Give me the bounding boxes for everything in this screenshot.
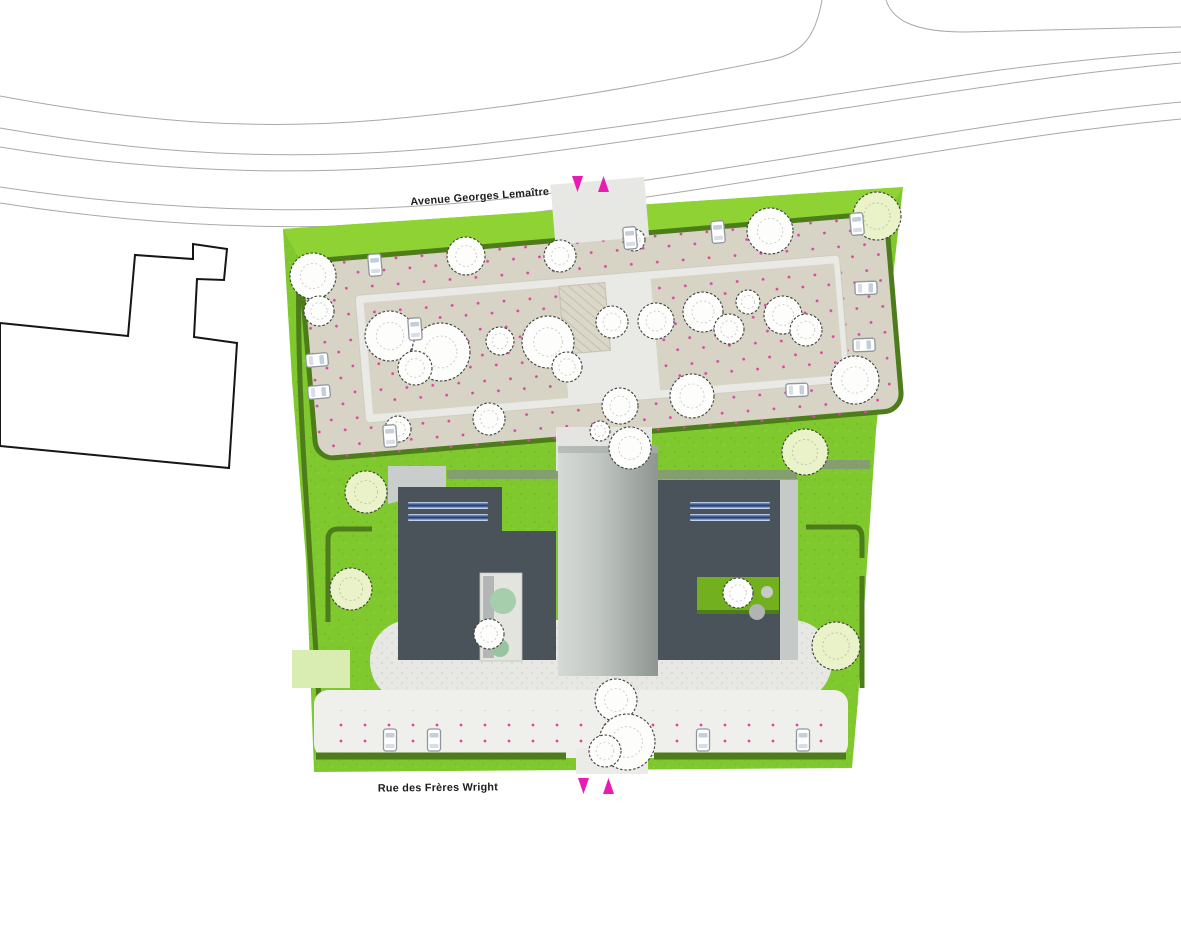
parked-car [428, 729, 441, 751]
parked-car [853, 338, 875, 352]
tree [609, 427, 651, 469]
parked-car [855, 281, 877, 295]
context-building-outline [0, 244, 237, 468]
tree [398, 351, 432, 385]
tree [486, 327, 514, 355]
parked-car [623, 226, 638, 249]
tree [290, 253, 336, 299]
tree [330, 568, 372, 610]
tree [304, 296, 334, 326]
parked-car [850, 212, 865, 235]
tree [831, 356, 879, 404]
tree [345, 471, 387, 513]
street-label-rue: Rue des Frères Wright [378, 781, 499, 794]
tree [747, 208, 793, 254]
parked-car [408, 318, 423, 341]
tree [590, 421, 610, 441]
east-building-wing [780, 480, 798, 660]
tree [714, 314, 744, 344]
tree [589, 735, 621, 767]
tree [552, 352, 582, 382]
site-plan-drawing: Avenue Georges Lemaître Rue des Frères W… [0, 0, 1181, 945]
access-arrows-bottom [578, 778, 614, 794]
tree [596, 306, 628, 338]
gravel-circle [761, 586, 773, 598]
parked-car [697, 729, 710, 751]
parked-car [384, 729, 397, 751]
parked-car [797, 729, 810, 751]
gravel-circle [749, 604, 765, 620]
tree [473, 403, 505, 435]
tree [790, 314, 822, 346]
parked-car [307, 385, 330, 400]
parked-car [383, 425, 398, 448]
parked-car [305, 353, 328, 368]
planting-circle [490, 588, 516, 614]
tree [782, 429, 828, 475]
tree [736, 290, 760, 314]
tree [544, 240, 576, 272]
tree [670, 374, 714, 418]
arrow-up-icon [603, 778, 614, 794]
tree [602, 388, 638, 424]
tree [447, 237, 485, 275]
tree [638, 303, 674, 339]
parked-car [711, 220, 726, 243]
site-plan-canvas: Avenue Georges Lemaître Rue des Frères W… [0, 0, 1181, 945]
tree [812, 622, 860, 670]
tree [723, 578, 753, 608]
parked-car [368, 253, 383, 276]
parked-car [786, 383, 808, 397]
tree [474, 619, 504, 649]
street-label-avenue: Avenue Georges Lemaître [410, 186, 550, 208]
light-lawn-patch [292, 650, 350, 688]
arrow-down-icon [578, 778, 589, 794]
central-core-roof [558, 446, 658, 676]
